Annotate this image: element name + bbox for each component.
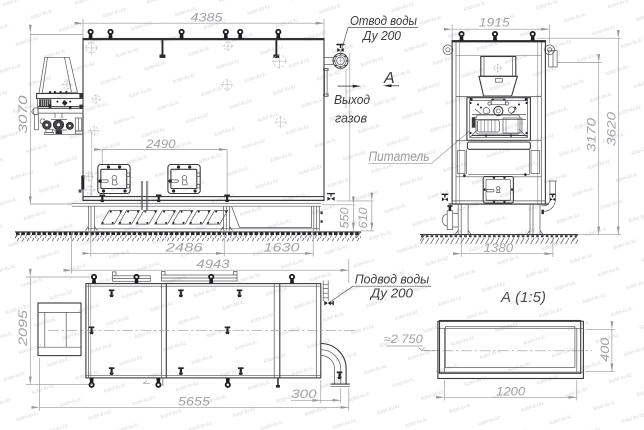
- svg-text:2095: 2095: [16, 310, 30, 348]
- svg-text:1200: 1200: [496, 384, 525, 398]
- svg-text:Питатель: Питатель: [369, 149, 430, 164]
- svg-text:2486: 2486: [164, 240, 203, 254]
- svg-text:1380: 1380: [484, 241, 514, 255]
- svg-text:4943: 4943: [197, 257, 230, 271]
- svg-text:1630: 1630: [264, 240, 300, 254]
- svg-text:Ду 200: Ду 200: [361, 28, 402, 43]
- svg-text:газов: газов: [335, 111, 367, 126]
- svg-text:1915: 1915: [479, 16, 510, 30]
- svg-text:Ду 200: Ду 200: [369, 286, 414, 301]
- svg-text:400: 400: [598, 337, 612, 361]
- svg-text:4385: 4385: [191, 11, 223, 25]
- svg-text:А (1:5): А (1:5): [500, 289, 546, 306]
- svg-text:≈2 750: ≈2 750: [384, 332, 423, 346]
- svg-text:3070: 3070: [16, 95, 30, 133]
- svg-text:3170: 3170: [585, 118, 599, 152]
- svg-text:610: 610: [356, 207, 370, 228]
- svg-text:5655: 5655: [178, 395, 210, 409]
- svg-text:Выход: Выход: [334, 92, 370, 107]
- svg-text:3620: 3620: [604, 112, 618, 146]
- svg-text:Отвод воды: Отвод воды: [350, 13, 417, 28]
- svg-text:А: А: [383, 70, 395, 87]
- svg-text:550: 550: [338, 207, 352, 228]
- svg-text:300: 300: [291, 387, 317, 401]
- svg-text:2490: 2490: [145, 137, 176, 151]
- svg-text:Подвод воды: Подвод воды: [355, 272, 430, 287]
